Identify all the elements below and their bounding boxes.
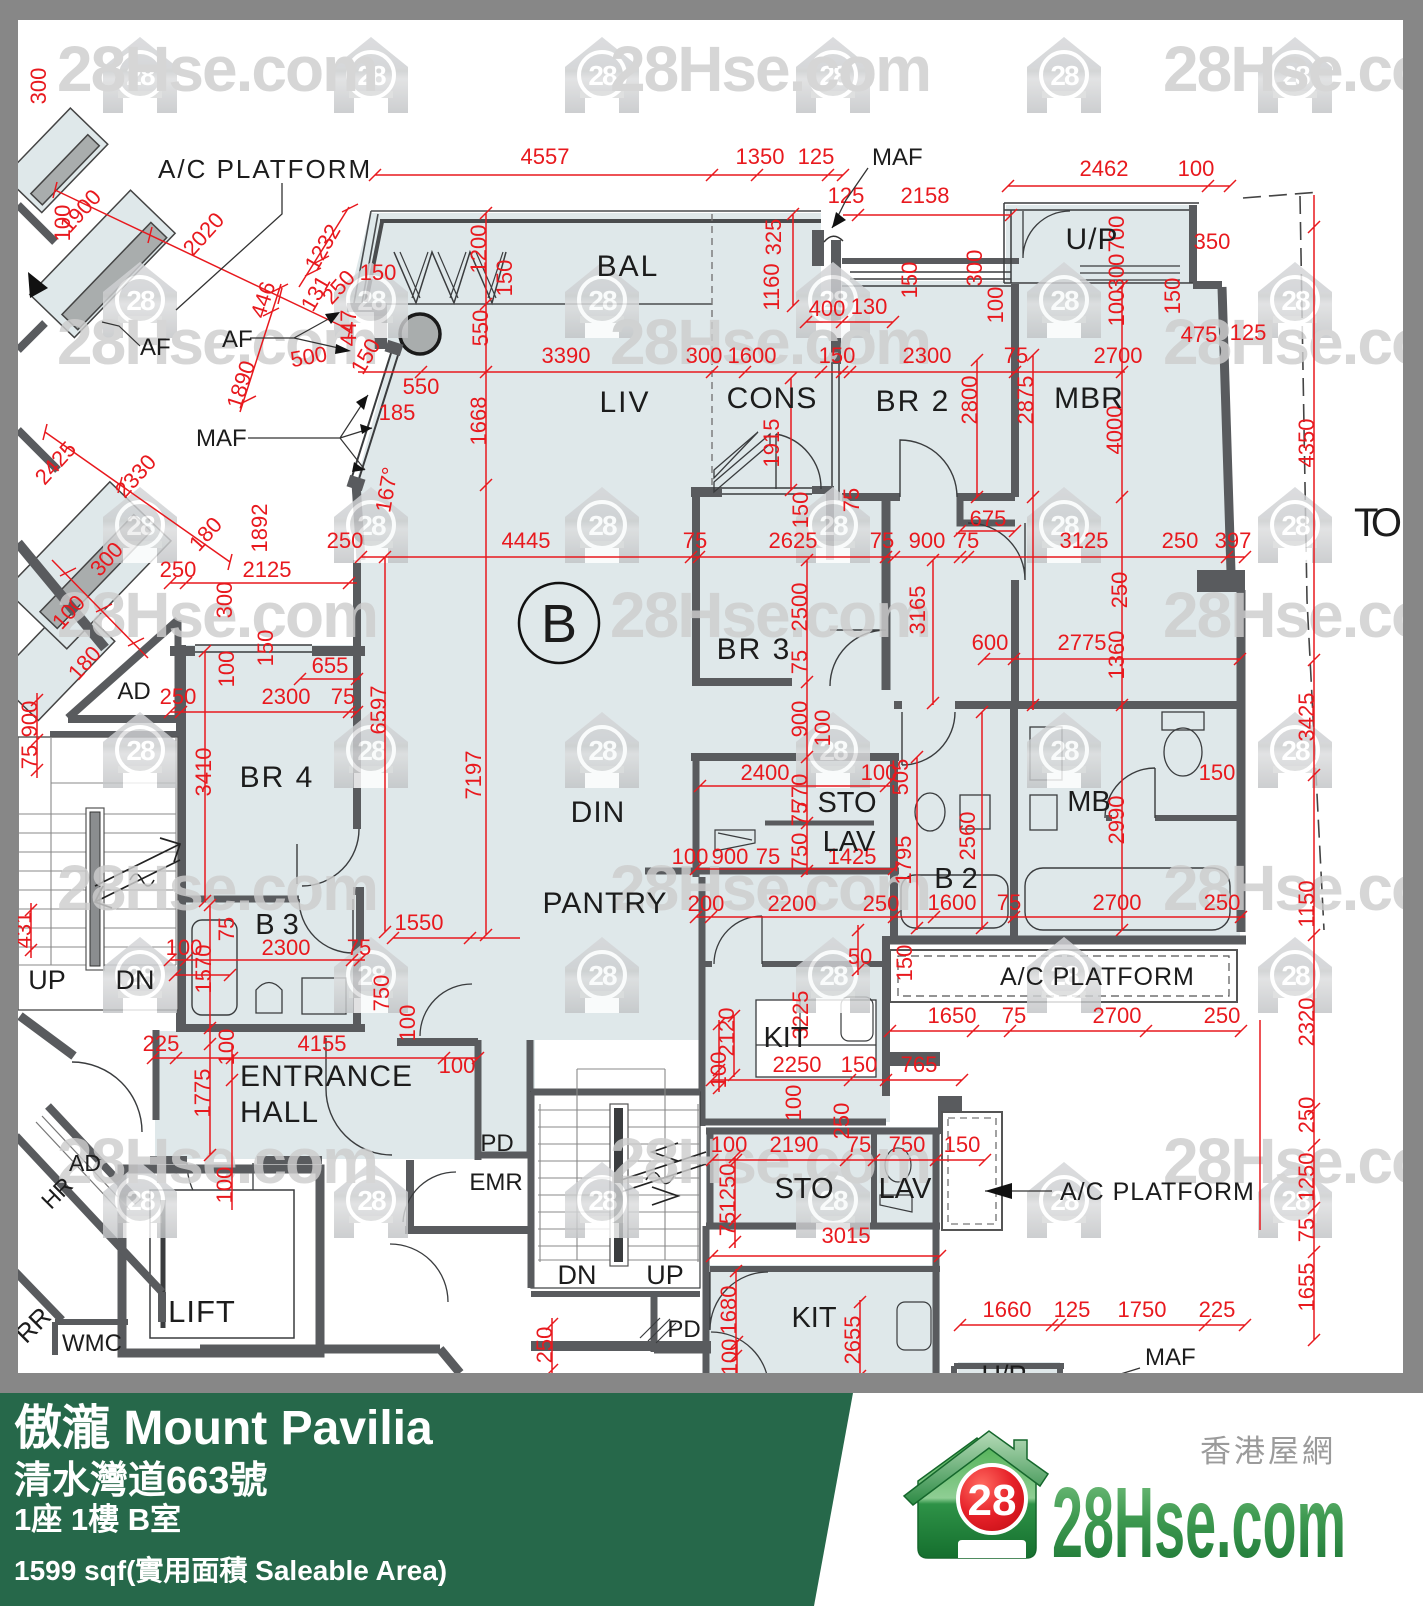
svg-text:447: 447 (336, 310, 361, 347)
svg-text:150: 150 (841, 1052, 878, 1077)
svg-text:505: 505 (888, 759, 913, 796)
svg-text:250: 250 (1294, 1097, 1319, 1134)
svg-text:75: 75 (331, 684, 355, 709)
svg-text:185: 185 (379, 400, 416, 425)
svg-text:BR 3: BR 3 (717, 633, 792, 666)
svg-text:100: 100 (1178, 156, 1215, 181)
svg-text:100: 100 (810, 710, 835, 747)
svg-text:2700: 2700 (1094, 343, 1143, 368)
svg-text:100: 100 (395, 1005, 420, 1042)
svg-text:75: 75 (17, 745, 42, 769)
svg-text:1680: 1680 (716, 1286, 741, 1335)
svg-text:150: 150 (897, 262, 922, 299)
svg-text:2700: 2700 (1093, 890, 1142, 915)
svg-text:150: 150 (253, 630, 278, 667)
svg-text:1360: 1360 (1104, 631, 1129, 680)
svg-text:7197: 7197 (461, 751, 486, 800)
svg-text:4350: 4350 (1294, 419, 1319, 468)
svg-text:3390: 3390 (542, 343, 591, 368)
svg-text:250: 250 (829, 1103, 854, 1140)
svg-text:AD: AD (117, 678, 150, 705)
svg-text:1650: 1650 (928, 1003, 977, 1028)
svg-text:150: 150 (1199, 760, 1236, 785)
svg-text:CONS: CONS (727, 382, 818, 415)
svg-text:750: 750 (787, 833, 812, 870)
svg-text:350: 350 (1194, 229, 1231, 254)
svg-text:A/C PLATFORM: A/C PLATFORM (158, 154, 372, 184)
svg-text:1250: 1250 (715, 1164, 740, 1213)
svg-text:75: 75 (715, 1212, 740, 1236)
svg-text:150: 150 (788, 492, 813, 529)
svg-text:250: 250 (160, 557, 197, 582)
svg-text:HALL: HALL (240, 1096, 319, 1129)
svg-text:2158: 2158 (901, 183, 950, 208)
svg-text:600: 600 (972, 630, 1009, 655)
svg-text:250: 250 (1204, 890, 1241, 915)
svg-text:3125: 3125 (1060, 528, 1109, 553)
svg-text:B: B (541, 594, 577, 654)
svg-text:28Hse.com: 28Hse.com (57, 33, 377, 105)
svg-text:AF: AF (140, 334, 171, 361)
svg-text:75: 75 (683, 528, 707, 553)
svg-text:B 2: B 2 (934, 863, 978, 895)
svg-text:EMR: EMR (469, 1169, 522, 1196)
svg-text:1599 sqf(實用面積 Saleable Area): 1599 sqf(實用面積 Saleable Area) (14, 1554, 447, 1586)
svg-text:2625: 2625 (769, 528, 818, 553)
svg-text:125: 125 (1230, 320, 1267, 345)
svg-text:MAF: MAF (1145, 1344, 1196, 1371)
svg-text:A/C PLATFORM: A/C PLATFORM (1060, 1178, 1255, 1206)
svg-text:DIN: DIN (571, 796, 626, 829)
svg-text:1600: 1600 (728, 343, 777, 368)
svg-text:3015: 3015 (822, 1223, 871, 1248)
svg-text:750: 750 (369, 975, 394, 1012)
svg-text:1668: 1668 (466, 397, 491, 446)
svg-text:4445: 4445 (502, 528, 551, 553)
svg-text:2300: 2300 (262, 684, 311, 709)
svg-text:1775: 1775 (190, 1069, 215, 1118)
svg-text:250: 250 (327, 528, 364, 553)
svg-text:550: 550 (468, 310, 493, 347)
svg-text:3410: 3410 (191, 748, 216, 797)
svg-text:3425: 3425 (1294, 693, 1319, 742)
svg-text:2700: 2700 (1093, 1003, 1142, 1028)
svg-text:100: 100 (717, 1339, 742, 1376)
svg-text:75: 75 (787, 802, 812, 826)
svg-text:2655: 2655 (840, 1316, 865, 1365)
svg-text:KIT: KIT (763, 1022, 808, 1054)
svg-text:1655: 1655 (1294, 1263, 1319, 1312)
svg-text:28Hse.com: 28Hse.com (1163, 579, 1423, 651)
svg-text:900: 900 (787, 701, 812, 738)
svg-text:MBR: MBR (1054, 382, 1124, 415)
svg-text:397: 397 (1215, 528, 1252, 553)
svg-text:400: 400 (809, 296, 846, 321)
svg-text:100: 100 (212, 1167, 237, 1204)
svg-text:2400: 2400 (741, 760, 790, 785)
svg-text:LIFT: LIFT (168, 1294, 236, 1329)
svg-text:150: 150 (360, 260, 397, 285)
svg-text:DN: DN (558, 1260, 597, 1290)
svg-text:1750: 1750 (1118, 1297, 1167, 1322)
svg-text:UP: UP (28, 965, 66, 995)
svg-text:300: 300 (962, 250, 987, 287)
svg-text:清水灣道663號: 清水灣道663號 (14, 1460, 267, 1502)
svg-text:U/P: U/P (1065, 223, 1118, 256)
svg-text:MAF: MAF (196, 425, 247, 452)
svg-text:250: 250 (160, 684, 197, 709)
svg-text:2560: 2560 (955, 812, 980, 861)
svg-text:WMC: WMC (62, 1330, 122, 1357)
svg-text:75: 75 (1004, 343, 1028, 368)
svg-text:1350: 1350 (736, 144, 785, 169)
svg-text:28Hse.com: 28Hse.com (57, 852, 377, 924)
svg-text:香港屋網: 香港屋網 (1200, 1434, 1336, 1469)
svg-text:125: 125 (828, 183, 865, 208)
svg-text:150: 150 (492, 260, 517, 297)
svg-text:130: 130 (851, 294, 888, 319)
svg-text:655: 655 (312, 653, 349, 678)
svg-text:TO: TO (1354, 501, 1402, 545)
svg-text:3165: 3165 (905, 586, 930, 635)
svg-text:2125: 2125 (243, 557, 292, 582)
svg-text:300: 300 (686, 343, 723, 368)
svg-text:250: 250 (1204, 1003, 1241, 1028)
svg-text:1座 1樓 B室: 1座 1樓 B室 (14, 1502, 181, 1537)
svg-text:550: 550 (403, 374, 440, 399)
svg-text:PANTRY: PANTRY (543, 887, 668, 920)
svg-text:BR 2: BR 2 (876, 385, 951, 418)
svg-text:PD: PD (667, 1316, 700, 1343)
svg-text:100: 100 (983, 287, 1008, 324)
svg-text:4155: 4155 (298, 1031, 347, 1056)
svg-text:6597: 6597 (366, 686, 391, 735)
svg-text:100: 100 (214, 651, 239, 688)
svg-text:765: 765 (901, 1052, 938, 1077)
svg-text:28Hse.com: 28Hse.com (1052, 1467, 1346, 1579)
svg-text:900: 900 (712, 844, 749, 869)
svg-text:AD: AD (69, 1150, 101, 1176)
svg-text:STO: STO (817, 787, 876, 819)
svg-text:225: 225 (1199, 1297, 1236, 1322)
svg-text:675: 675 (970, 506, 1007, 531)
svg-text:1660: 1660 (983, 1297, 1032, 1322)
svg-text:BR 4: BR 4 (240, 761, 315, 794)
svg-text:325: 325 (761, 219, 786, 256)
svg-text:2250: 2250 (773, 1052, 822, 1077)
svg-text:250: 250 (532, 1327, 557, 1364)
svg-text:1550: 1550 (395, 910, 444, 935)
svg-text:MAF: MAF (872, 144, 923, 171)
svg-text:1200: 1200 (466, 225, 491, 274)
svg-text:1915: 1915 (759, 419, 784, 468)
svg-text:125: 125 (1054, 1297, 1091, 1322)
svg-text:DN: DN (116, 965, 155, 995)
svg-text:2800: 2800 (957, 376, 982, 425)
svg-text:1892: 1892 (247, 504, 272, 553)
svg-text:100: 100 (711, 1132, 748, 1157)
svg-text:2775: 2775 (1058, 630, 1107, 655)
svg-text:28Hse.com: 28Hse.com (1163, 852, 1423, 924)
svg-text:2300: 2300 (903, 343, 952, 368)
svg-text:LAV: LAV (823, 826, 876, 858)
svg-text:250: 250 (863, 891, 900, 916)
svg-text:200: 200 (688, 891, 725, 916)
svg-text:MB: MB (1067, 786, 1111, 818)
svg-text:2120: 2120 (714, 1008, 739, 1057)
svg-text:100: 100 (214, 1029, 239, 1066)
svg-text:UP: UP (646, 1260, 684, 1290)
svg-text:75: 75 (839, 488, 864, 512)
svg-text:PD: PD (480, 1130, 513, 1157)
svg-text:100: 100 (706, 1052, 731, 1089)
svg-text:1160: 1160 (759, 263, 784, 310)
svg-text:150: 150 (892, 945, 917, 982)
svg-text:1150: 1150 (1294, 880, 1319, 927)
svg-text:傲瀧 Mount Pavilia: 傲瀧 Mount Pavilia (14, 1402, 433, 1455)
svg-text:900: 900 (909, 528, 946, 553)
svg-text:100: 100 (672, 844, 709, 869)
svg-text:KIT: KIT (791, 1302, 836, 1334)
svg-text:2462: 2462 (1080, 156, 1129, 181)
svg-text:475: 475 (1181, 322, 1218, 347)
svg-text:75: 75 (756, 844, 780, 869)
svg-text:75: 75 (1002, 1003, 1026, 1028)
svg-text:300: 300 (212, 582, 237, 619)
svg-text:250: 250 (1162, 528, 1199, 553)
svg-text:75: 75 (214, 917, 239, 941)
svg-text:1250: 1250 (1294, 1153, 1319, 1202)
svg-text:75: 75 (997, 890, 1021, 915)
svg-text:150: 150 (1160, 278, 1185, 315)
svg-text:2320: 2320 (1294, 998, 1319, 1047)
svg-text:225: 225 (143, 1031, 180, 1056)
svg-text:900: 900 (17, 701, 42, 738)
svg-text:100: 100 (1104, 290, 1129, 327)
svg-text:LAV: LAV (879, 1173, 932, 1205)
svg-text:1795: 1795 (891, 836, 916, 885)
svg-text:100: 100 (439, 1053, 476, 1078)
svg-text:250: 250 (1107, 572, 1132, 609)
svg-text:1570: 1570 (191, 945, 216, 994)
svg-text:LIV: LIV (599, 386, 650, 419)
svg-text:4557: 4557 (521, 144, 570, 169)
svg-text:2500: 2500 (787, 583, 812, 632)
svg-text:75: 75 (870, 528, 894, 553)
svg-text:STO: STO (774, 1173, 833, 1205)
svg-text:125: 125 (798, 144, 835, 169)
svg-text:ENTRANCE: ENTRANCE (240, 1060, 413, 1093)
svg-text:28Hse.com: 28Hse.com (1163, 33, 1423, 105)
svg-text:300: 300 (26, 68, 51, 105)
svg-text:100: 100 (781, 1085, 806, 1122)
svg-text:28Hse.com: 28Hse.com (610, 33, 930, 105)
svg-text:75: 75 (955, 528, 979, 553)
svg-text:BAL: BAL (597, 250, 660, 283)
svg-text:A/C PLATFORM: A/C PLATFORM (1000, 963, 1195, 991)
svg-text:50: 50 (848, 944, 872, 969)
svg-text:150: 150 (944, 1132, 981, 1157)
svg-text:300: 300 (1104, 254, 1129, 291)
svg-text:2200: 2200 (768, 891, 817, 916)
svg-text:2875: 2875 (1013, 376, 1038, 425)
svg-text:B 3: B 3 (255, 909, 299, 941)
svg-text:750: 750 (889, 1132, 926, 1157)
svg-text:2190: 2190 (770, 1132, 819, 1157)
svg-text:AF: AF (222, 326, 253, 353)
svg-text:28: 28 (968, 1476, 1017, 1525)
svg-text:75: 75 (1294, 1218, 1319, 1242)
svg-text:150: 150 (819, 343, 856, 368)
svg-text:75: 75 (347, 935, 371, 960)
